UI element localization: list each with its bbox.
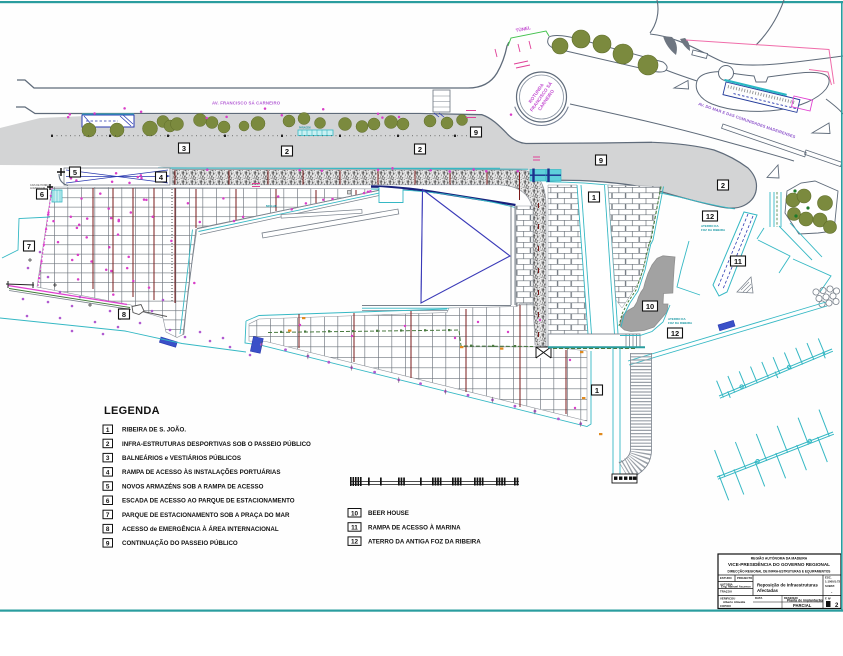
svg-text:1: 1 (595, 386, 599, 395)
svg-text:RIBEIRA DE S. JOÃO.: RIBEIRA DE S. JOÃO. (122, 427, 186, 434)
svg-text:Afectadas: Afectadas (757, 588, 779, 593)
svg-text:10: 10 (646, 302, 654, 311)
svg-text:8: 8 (106, 526, 110, 533)
svg-text:CONTINUAÇÃO DO PASSEIO PÚBLICO: CONTINUAÇÃO DO PASSEIO PÚBLICO (122, 540, 238, 547)
svg-text:FOZ DA RIBEIRA: FOZ DA RIBEIRA (701, 228, 726, 232)
svg-text:2: 2 (721, 181, 725, 190)
svg-text:ACESSO de EMERGÊNCIA À ÁREA IN: ACESSO de EMERGÊNCIA À ÁREA INTERNACIONA… (122, 525, 279, 533)
svg-text:7: 7 (27, 242, 31, 251)
svg-text:2: 2 (106, 441, 110, 448)
svg-text:DATA: DATA (755, 596, 762, 600)
svg-text:INFRA-ESTRUTURAS DESPORTIVAS S: INFRA-ESTRUTURAS DESPORTIVAS SOB O PASSE… (122, 441, 311, 448)
svg-text:Reposição de Infraestruturas: Reposição de Infraestruturas (757, 583, 818, 588)
svg-text:FOZ DA RIBEIRA: FOZ DA RIBEIRA (668, 321, 693, 325)
svg-text:5: 5 (106, 484, 110, 491)
svg-text:F. Nº: F. Nº (825, 597, 831, 601)
svg-text:BEER HOUSE: BEER HOUSE (368, 510, 409, 517)
svg-text:11: 11 (351, 525, 358, 532)
svg-text:AV. FRANCISCO SÁ CARNEIRO: AV. FRANCISCO SÁ CARNEIRO (212, 101, 281, 106)
svg-text:Eng. Manuel Ascenso: Eng. Manuel Ascenso (721, 585, 751, 589)
svg-text:9: 9 (106, 540, 110, 547)
svg-text:ESTUDO: ESTUDO (720, 576, 732, 580)
svg-text:DIRECÇÃO REGIONAL DE INFRA-EST: DIRECÇÃO REGIONAL DE INFRA-ESTRUTURAS E … (728, 569, 831, 574)
svg-text:4: 4 (106, 469, 110, 476)
svg-text:10: 10 (351, 510, 359, 517)
svg-text:12: 12 (351, 539, 359, 546)
svg-text:3: 3 (182, 144, 186, 153)
svg-text:MOLHE: MOLHE (266, 204, 277, 208)
svg-text:SUBST.: SUBST. (825, 584, 835, 588)
svg-text:5: 5 (73, 168, 77, 177)
svg-text:12: 12 (671, 329, 679, 338)
svg-text:PARAGEM: PARAGEM (299, 127, 311, 130)
svg-text:9: 9 (599, 156, 603, 165)
svg-text:PROJECTO: PROJECTO (737, 576, 753, 580)
svg-text:TRAÇOU: TRAÇOU (720, 590, 732, 594)
svg-text:COPIOU: COPIOU (720, 604, 731, 608)
svg-text:REGIÃO AUTÓNOMA DA MADEIRA: REGIÃO AUTÓNOMA DA MADEIRA (751, 555, 808, 560)
svg-text:PARQUE DE ESTACIONAMENTO SOB A: PARQUE DE ESTACIONAMENTO SOB A PRAÇA DO … (122, 512, 290, 519)
svg-text:7: 7 (106, 512, 110, 519)
svg-text:11: 11 (734, 257, 742, 266)
svg-text:VICE-PRESIDÊNCIA DO GOVERNO RE: VICE-PRESIDÊNCIA DO GOVERNO REGIONAL (728, 560, 830, 567)
svg-text:1:1000/1:72: 1:1000/1:72 (825, 579, 841, 583)
svg-text:LEGENDA: LEGENDA (104, 405, 160, 417)
svg-text:2: 2 (418, 145, 422, 154)
svg-text:8: 8 (122, 310, 126, 319)
svg-text:6: 6 (40, 190, 44, 199)
svg-text:1: 1 (592, 193, 596, 202)
svg-text:RAMPA DE ACESSO ÀS INSTALAÇÕES: RAMPA DE ACESSO ÀS INSTALAÇÕES PORTUÁRIA… (122, 469, 280, 476)
svg-text:2: 2 (285, 147, 289, 156)
svg-text:6: 6 (106, 498, 110, 505)
svg-text:RAMPA DE ACESSO À MARINA: RAMPA DE ACESSO À MARINA (368, 524, 461, 531)
svg-text:12: 12 (706, 212, 714, 221)
svg-text:3: 3 (106, 455, 110, 462)
svg-text:ATERRO DA ANTIGA FOZ DA RIBEIR: ATERRO DA ANTIGA FOZ DA RIBEIRA (368, 539, 481, 546)
svg-text:9: 9 (474, 128, 478, 137)
svg-text:BALNEÁRIOS e VESTIÁRIOS PÚBLIC: BALNEÁRIOS e VESTIÁRIOS PÚBLICOS (122, 455, 241, 462)
svg-text:Planta de implantação: Planta de implantação (787, 599, 823, 603)
svg-text:NOVOS ARMAZÉNS SOB A RAMPA DE: NOVOS ARMAZÉNS SOB A RAMPA DE ACESSO (122, 482, 264, 490)
svg-text:ESCADA DE ACESSO AO PARQUE DE: ESCADA DE ACESSO AO PARQUE DE ESTACIONAM… (122, 498, 295, 505)
svg-text:PARCIAL: PARCIAL (793, 603, 812, 608)
svg-text:1: 1 (106, 427, 110, 434)
